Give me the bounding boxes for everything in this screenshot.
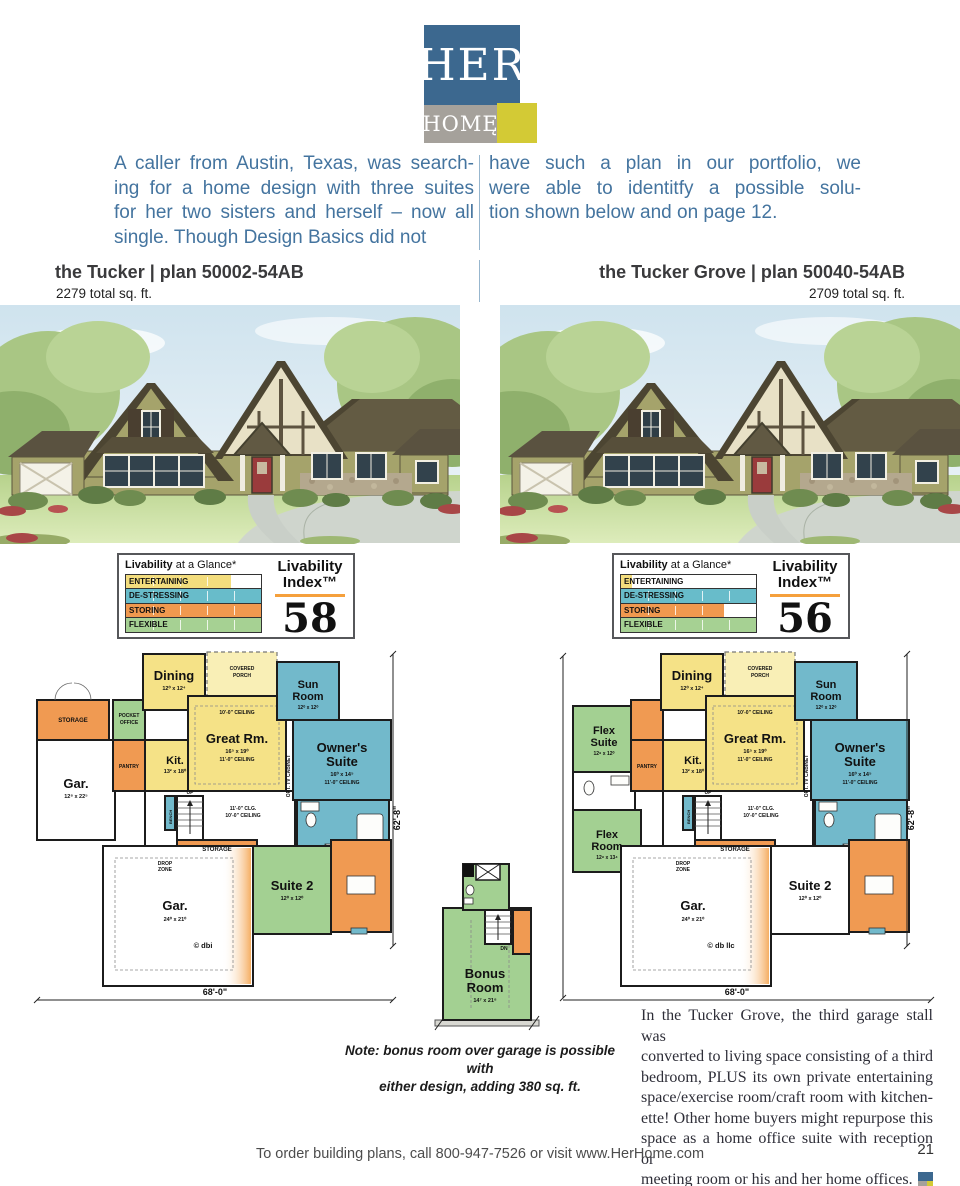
- livability-chart-right: Livability at a Glance* ENTERTAINING DE-…: [612, 553, 850, 639]
- svg-text:11'-0" CEILING: 11'-0" CEILING: [738, 757, 773, 763]
- room-kitchen: Kit.13² x 18⁰: [164, 755, 187, 775]
- intro-line: ing for a home design with three suites: [114, 177, 474, 202]
- livability-bar-flexible: FLEXIBLE: [126, 618, 261, 631]
- room-garage-small: Gar.12⁸ x 22⁵: [63, 776, 88, 800]
- room-storage: STORAGE: [58, 718, 88, 724]
- svg-text:© dbi: © dbi: [194, 941, 213, 950]
- svg-text:Owner's: Owner's: [317, 740, 368, 755]
- room-storage2: STORAGE: [202, 847, 232, 853]
- plan-title-left: the Tucker | plan 50002-54AB: [55, 262, 304, 283]
- svg-text:10'-0" CEILING: 10'-0" CEILING: [225, 813, 260, 819]
- intro-column-divider: [479, 155, 480, 250]
- svg-text:Flex: Flex: [593, 725, 616, 737]
- svg-text:12⁰ x 12⁴: 12⁰ x 12⁴: [680, 685, 704, 692]
- intro-column-left: A caller from Austin, Texas, was search-…: [114, 152, 474, 250]
- livability-bar-destressing: DE-STRESSING: [621, 589, 756, 603]
- svg-text:BENCH: BENCH: [686, 810, 691, 824]
- svg-text:10'-0" CEILING: 10'-0" CEILING: [743, 813, 778, 819]
- livability-bar-entertaining: ENTERTAINING: [621, 575, 756, 589]
- her-home-mini-logo: [918, 1172, 933, 1186]
- opt-tv-cabinet: OPT. TV CABINET: [286, 755, 292, 798]
- room-flex-suite: FlexSuite12⁸ x 12⁰: [591, 725, 618, 757]
- svg-text:Room: Room: [810, 691, 841, 703]
- plan-sqft-right: 2709 total sq. ft.: [480, 286, 905, 301]
- livability-index: Livability Index™ 56: [762, 555, 848, 637]
- livability-bar-destressing: DE-STRESSING: [126, 589, 261, 603]
- stairs-up: UP: [187, 790, 195, 796]
- svg-text:Dining: Dining: [154, 668, 194, 683]
- svg-text:OPT. TV CABINET: OPT. TV CABINET: [286, 755, 292, 798]
- svg-text:24⁰ x 21⁰: 24⁰ x 21⁰: [164, 916, 188, 923]
- svg-text:UP: UP: [187, 790, 195, 796]
- svg-text:12⁸ x 22⁵: 12⁸ x 22⁵: [64, 794, 88, 800]
- svg-text:ZONE: ZONE: [158, 867, 173, 873]
- svg-text:Great Rm.: Great Rm.: [724, 731, 786, 746]
- hall-ceiling: 11'-0" CLG.10'-0" CEILING: [743, 806, 778, 819]
- svg-text:24⁰ x 21⁰: 24⁰ x 21⁰: [682, 916, 706, 923]
- plan-sqft-left: 2279 total sq. ft.: [56, 286, 152, 301]
- livability-bar-flexible: FLEXIBLE: [621, 618, 756, 631]
- svg-text:16⁵ x 19⁰: 16⁵ x 19⁰: [743, 748, 767, 755]
- logo-yellow-square: [497, 103, 537, 143]
- intro-line: single. Though Design Basics did not: [114, 226, 474, 251]
- svg-text:Kit.: Kit.: [166, 755, 184, 767]
- svg-text:Sun: Sun: [816, 679, 837, 691]
- svg-text:62'-8": 62'-8": [392, 806, 402, 830]
- svg-text:62'-8": 62'-8": [906, 806, 916, 830]
- livability-chart-left: Livability at a Glance* ENTERTAINING DE-…: [117, 553, 355, 639]
- floorplan-tucker-grove: FlexSuite12⁸ x 12⁰ FlexRoom12⁸ x 13⁴ PAN…: [555, 648, 935, 1013]
- livability-glance-title: Livability at a Glance*: [620, 559, 757, 571]
- bonus-room-plan: Bonus Room 14⁷ x 21⁸ DN: [433, 860, 548, 1045]
- svg-text:Suite: Suite: [844, 754, 876, 769]
- fp-left-rooms: [37, 652, 391, 986]
- svg-text:11'-0" CEILING: 11'-0" CEILING: [220, 757, 255, 763]
- copyright: © db llc: [707, 941, 734, 950]
- svg-text:OFFICE: OFFICE: [120, 720, 139, 726]
- svg-text:Dining: Dining: [672, 668, 712, 683]
- svg-text:Suite: Suite: [591, 737, 618, 749]
- hall-ceiling: 11'-0" CLG.10'-0" CEILING: [225, 806, 260, 819]
- opt-tv-cabinet: OPT. TV CABINET: [804, 755, 810, 798]
- room-covered-porch: COVEREDPORCH: [748, 666, 773, 679]
- intro-line: for her two sisters and herself – now al…: [114, 201, 474, 226]
- svg-text:13² x 18⁰: 13² x 18⁰: [682, 768, 705, 775]
- bonus-note: Note: bonus room over garage is possible…: [330, 1042, 630, 1096]
- svg-text:11'-0" CEILING: 11'-0" CEILING: [325, 780, 360, 786]
- svg-text:12⁸ x 12⁰: 12⁸ x 12⁰: [593, 751, 614, 757]
- svg-text:12⁰ x 12⁰: 12⁰ x 12⁰: [816, 705, 837, 711]
- svg-text:Suite: Suite: [326, 754, 358, 769]
- livability-index-value: 56: [762, 598, 848, 640]
- svg-text:68'-0": 68'-0": [725, 987, 749, 997]
- livability-bar-storing: STORING: [126, 604, 261, 618]
- svg-text:ZONE: ZONE: [676, 867, 691, 873]
- svg-text:STORAGE: STORAGE: [58, 718, 88, 724]
- svg-text:PANTRY: PANTRY: [637, 764, 658, 770]
- svg-text:13² x 18⁰: 13² x 18⁰: [164, 768, 187, 775]
- intro-line: have such a plan in our portfolio, we: [489, 152, 861, 177]
- intro-column-right: have such a plan in our portfolio, we we…: [489, 152, 861, 226]
- house-rendering-left: [0, 304, 460, 544]
- drop-zone: DROPZONE: [158, 861, 173, 873]
- fp-right-rooms: [573, 652, 909, 986]
- plan-title-right: the Tucker Grove | plan 50040-54AB: [480, 262, 905, 283]
- svg-text:12⁰ x 12⁰: 12⁰ x 12⁰: [281, 895, 305, 902]
- room-bench: BENCH: [168, 810, 173, 824]
- logo-home-bar: HOMĘ: [424, 105, 497, 143]
- svg-text:Room: Room: [292, 691, 323, 703]
- svg-text:STORAGE: STORAGE: [202, 847, 232, 853]
- livability-index-value: 58: [267, 598, 353, 640]
- svg-text:STORAGE: STORAGE: [720, 847, 750, 853]
- svg-text:COVERED: COVERED: [230, 666, 255, 672]
- svg-text:12⁰ x 12⁰: 12⁰ x 12⁰: [298, 705, 319, 711]
- room-garage-big: Gar.24⁰ x 21⁰: [162, 898, 187, 923]
- room-pantry: PANTRY: [119, 764, 140, 770]
- svg-text:Gar.: Gar.: [680, 898, 705, 913]
- drop-zone: DROPZONE: [676, 861, 691, 873]
- page-number: 21: [917, 1141, 934, 1158]
- svg-text:Suite 2: Suite 2: [789, 878, 832, 893]
- svg-text:10'-0" CEILING: 10'-0" CEILING: [219, 710, 254, 716]
- svg-text:PORCH: PORCH: [751, 673, 769, 679]
- stairs-up: UP: [705, 790, 713, 796]
- livability-bar-storing: STORING: [621, 604, 756, 618]
- svg-text:12⁸ x 13⁴: 12⁸ x 13⁴: [596, 855, 618, 861]
- svg-text:COVERED: COVERED: [748, 666, 773, 672]
- room-covered-porch: COVEREDPORCH: [230, 666, 255, 679]
- svg-text:OPT. TV CABINET: OPT. TV CABINET: [804, 755, 810, 798]
- svg-text:16⁰ x 14⁵: 16⁰ x 14⁵: [848, 771, 872, 778]
- house-rendering-right: [500, 304, 960, 544]
- her-home-logo: HER: [424, 25, 520, 105]
- livability-bars: ENTERTAINING DE-STRESSING STORING FLEXIB…: [125, 574, 262, 633]
- svg-text:Gar.: Gar.: [162, 898, 187, 913]
- svg-text:12⁰ x 12⁴: 12⁰ x 12⁴: [162, 685, 186, 692]
- svg-text:DN: DN: [500, 946, 508, 952]
- svg-text:16⁰ x 14⁵: 16⁰ x 14⁵: [330, 771, 354, 778]
- room-storage2: STORAGE: [720, 847, 750, 853]
- svg-text:Kit.: Kit.: [684, 755, 702, 767]
- svg-text:68'-0": 68'-0": [203, 987, 227, 997]
- logo-her-text: HER: [417, 40, 527, 91]
- room-pocket-office: POCKETOFFICE: [119, 713, 140, 726]
- svg-text:Bonus: Bonus: [465, 966, 505, 981]
- footer-order-info: To order building plans, call 800-947-75…: [0, 1146, 960, 1162]
- svg-text:11'-0" CEILING: 11'-0" CEILING: [843, 780, 878, 786]
- svg-text:UP: UP: [705, 790, 713, 796]
- livability-bars: ENTERTAINING DE-STRESSING STORING FLEXIB…: [620, 574, 757, 633]
- svg-text:11'-0" CLG.: 11'-0" CLG.: [230, 806, 257, 812]
- room-garage-big: Gar.24⁰ x 21⁰: [680, 898, 705, 923]
- svg-text:© db llc: © db llc: [707, 941, 734, 950]
- intro-line: A caller from Austin, Texas, was search-: [114, 152, 474, 177]
- room-bench: BENCH: [686, 810, 691, 824]
- livability-index: Livability Index™ 58: [267, 555, 353, 637]
- svg-text:Owner's: Owner's: [835, 740, 886, 755]
- copyright: © dbi: [194, 941, 213, 950]
- room-kitchen: Kit.13² x 18⁰: [682, 755, 705, 775]
- logo-home-text: HOMĘ: [422, 112, 498, 136]
- svg-text:Room: Room: [591, 841, 622, 853]
- svg-text:12⁰ x 12⁰: 12⁰ x 12⁰: [799, 895, 823, 902]
- svg-text:Suite 2: Suite 2: [271, 878, 314, 893]
- svg-text:14⁷ x 21⁸: 14⁷ x 21⁸: [473, 998, 497, 1004]
- svg-text:BENCH: BENCH: [168, 810, 173, 824]
- svg-text:Flex: Flex: [596, 829, 619, 841]
- svg-text:11'-0" CLG.: 11'-0" CLG.: [748, 806, 775, 812]
- svg-text:PORCH: PORCH: [233, 673, 251, 679]
- svg-text:PANTRY: PANTRY: [119, 764, 140, 770]
- svg-text:Sun: Sun: [298, 679, 319, 691]
- livability-bar-entertaining: ENTERTAINING: [126, 575, 261, 589]
- intro-line: tion shown below and on page 12.: [489, 201, 861, 226]
- svg-text:POCKET: POCKET: [119, 713, 140, 719]
- floorplan-tucker: STORAGE Gar.12⁸ x 22⁵ POCKETOFFICE PANTR…: [25, 648, 405, 1013]
- magazine-page: HER HOMĘ A caller from Austin, Texas, wa…: [0, 0, 960, 1186]
- svg-text:16⁵ x 19⁰: 16⁵ x 19⁰: [225, 748, 249, 755]
- svg-text:Gar.: Gar.: [63, 776, 88, 791]
- svg-text:Room: Room: [467, 980, 504, 995]
- intro-line: were able to identitfy a possible solu-: [489, 177, 861, 202]
- svg-text:Great Rm.: Great Rm.: [206, 731, 268, 746]
- livability-glance-title: Livability at a Glance*: [125, 559, 262, 571]
- svg-text:10'-0" CEILING: 10'-0" CEILING: [737, 710, 772, 716]
- room-pantry: PANTRY: [637, 764, 658, 770]
